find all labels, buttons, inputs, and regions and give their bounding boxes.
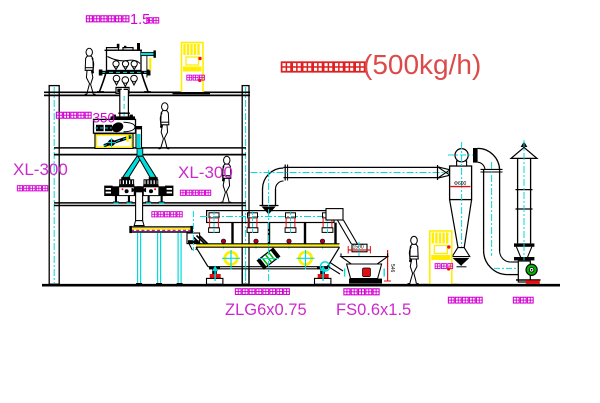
svg-text:XL-300: XL-300 <box>178 163 233 182</box>
svg-text:350: 350 <box>93 111 116 126</box>
svg-text:546: 546 <box>389 264 395 273</box>
svg-text:1500: 1500 <box>353 245 364 251</box>
svg-text:(500kg/h): (500kg/h) <box>363 49 481 80</box>
svg-text:FS0.6x1.5: FS0.6x1.5 <box>336 301 411 319</box>
svg-text:XL-300: XL-300 <box>13 160 68 179</box>
svg-text:ZLG6x0.75: ZLG6x0.75 <box>225 301 307 319</box>
svg-text:Φ600: Φ600 <box>454 181 467 187</box>
